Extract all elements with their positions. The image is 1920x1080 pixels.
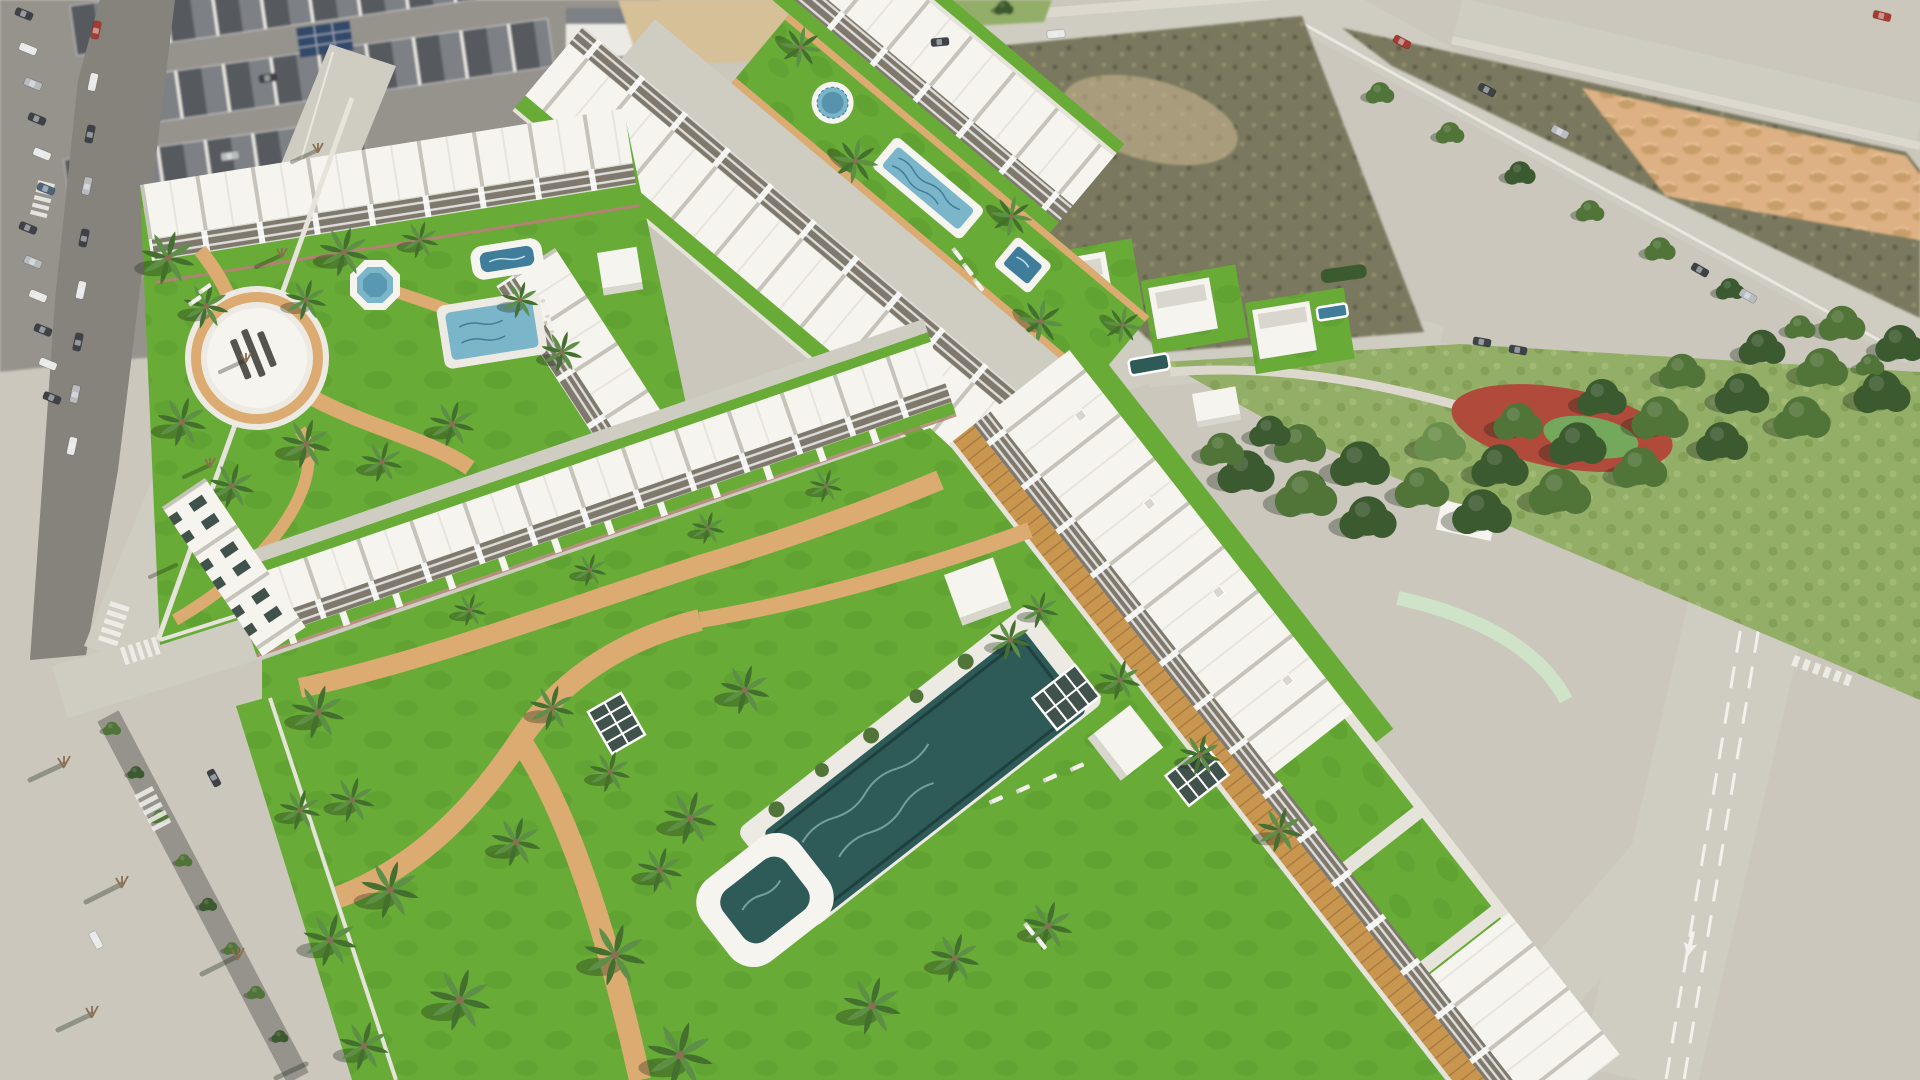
splash-pad-octagon bbox=[350, 260, 400, 310]
aerial-render bbox=[0, 0, 1920, 1080]
scene-canvas bbox=[0, 0, 1920, 1080]
pool-house-cube bbox=[597, 247, 643, 296]
